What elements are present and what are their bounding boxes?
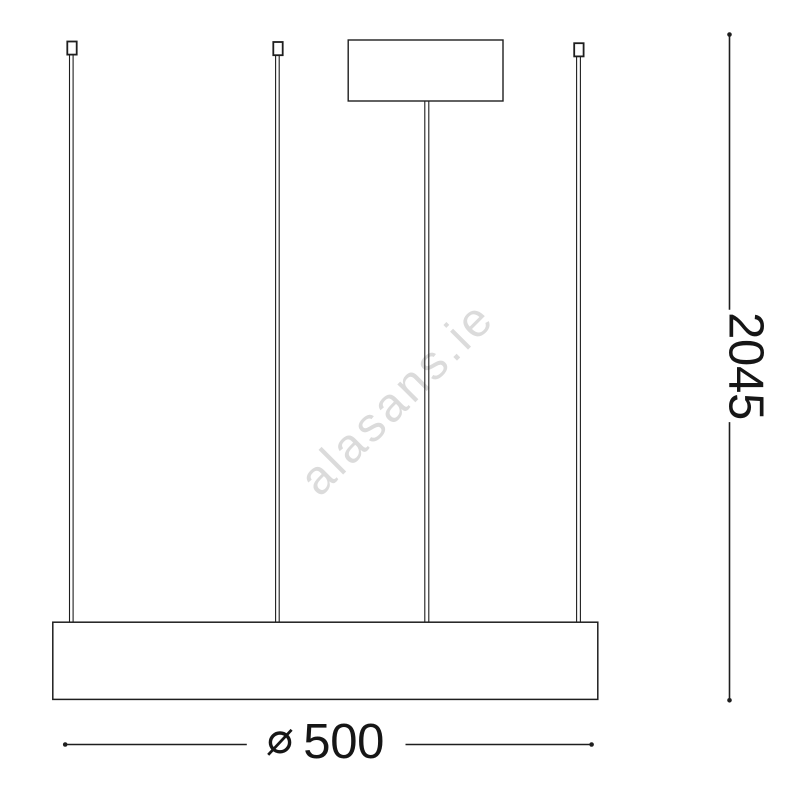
svg-text:2045: 2045	[719, 312, 773, 420]
svg-text:500: 500	[303, 715, 384, 769]
